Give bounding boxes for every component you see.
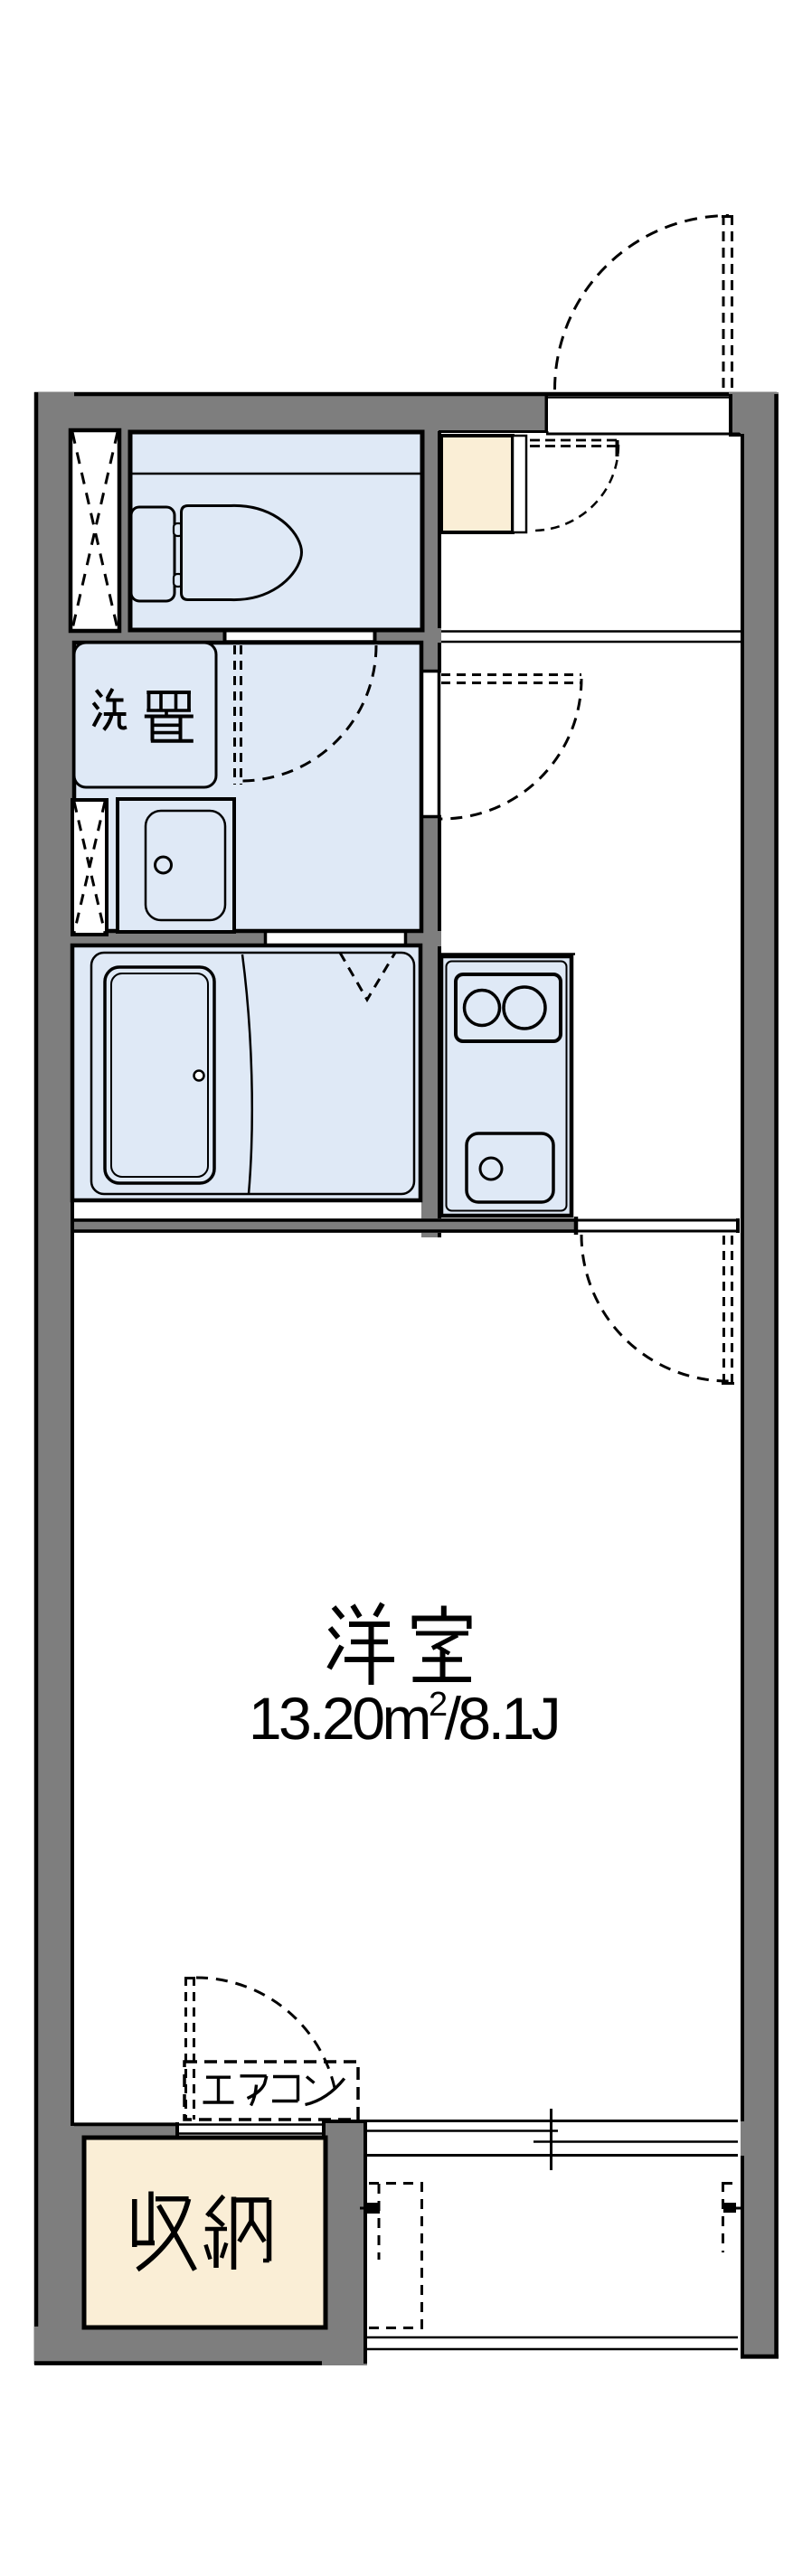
svg-text:13.20m2/8.1J: 13.20m2/8.1J xyxy=(249,1685,558,1752)
